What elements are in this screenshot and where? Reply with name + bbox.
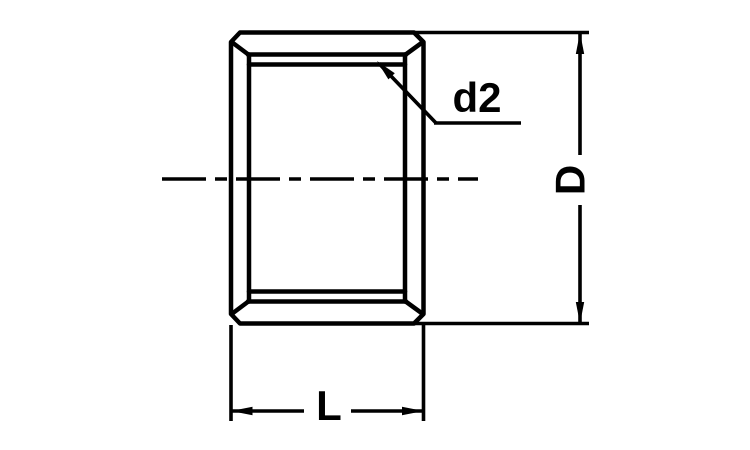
D-label: D: [547, 165, 594, 195]
dimension-L: L: [231, 325, 424, 429]
L-label: L: [316, 382, 342, 429]
dimension-d2: d2: [377, 61, 521, 123]
D-arrow-down: [576, 302, 584, 324]
drawing-canvas: d2 D L: [0, 0, 750, 450]
L-arrow-right: [402, 407, 424, 415]
technical-drawing: d2 D L: [0, 0, 750, 450]
L-arrow-left: [231, 407, 253, 415]
part-view: [162, 33, 478, 324]
D-arrow-up: [576, 33, 584, 55]
d2-label: d2: [452, 74, 501, 121]
